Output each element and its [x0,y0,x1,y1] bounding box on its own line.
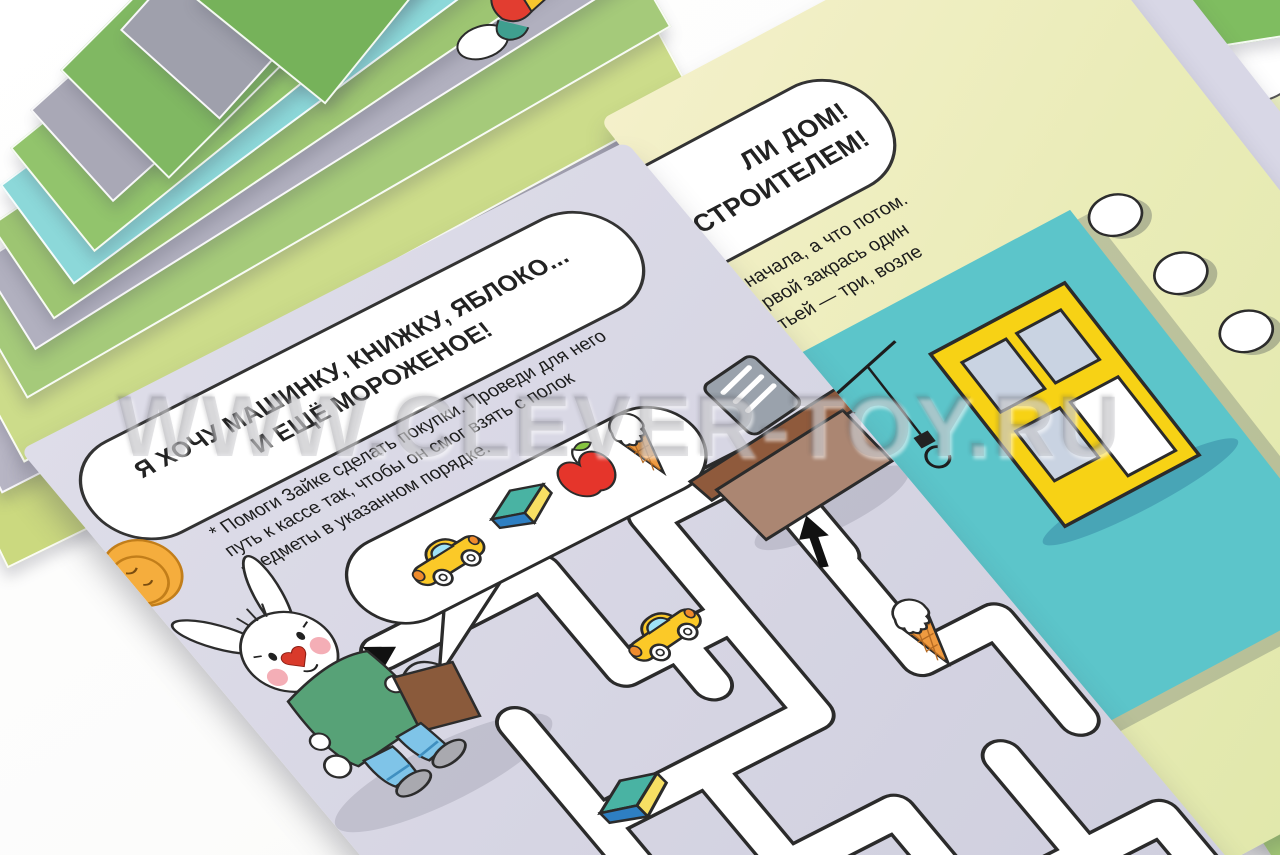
photo-activity-cards: у. [0,0,1280,855]
curled-fox-icon [80,528,198,620]
